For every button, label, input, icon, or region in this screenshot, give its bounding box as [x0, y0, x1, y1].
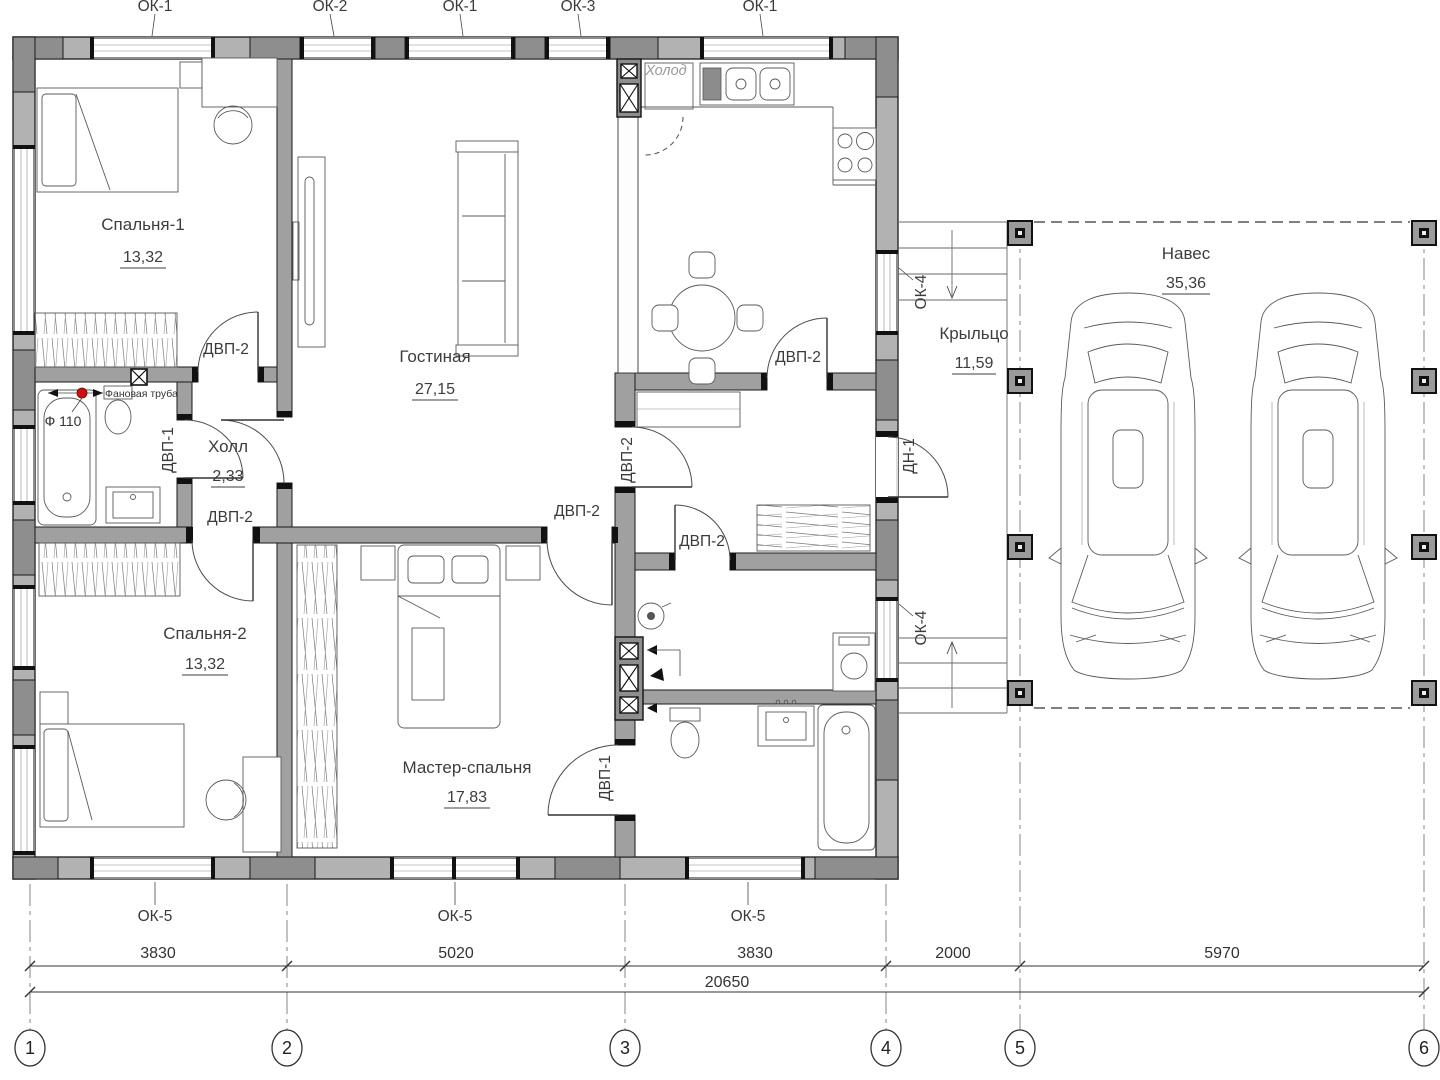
washing-machine [833, 633, 875, 691]
wardrobe [35, 313, 177, 367]
room-area-hall: 2,33 [212, 468, 243, 485]
axis-bubble-3: 3 [620, 1038, 630, 1058]
dim-segment-4: 2000 [935, 945, 971, 962]
floor-plan-page: 3830 5020 3830 2000 5970 20650 1 2 3 4 5… [0, 0, 1440, 1080]
dim-total: 20650 [705, 974, 750, 991]
door-label-dvp2-5: ДВП-2 [679, 533, 725, 550]
carport [1008, 221, 1436, 1031]
door-label-dvp2-1: ДВП-2 [203, 341, 249, 358]
bed [37, 62, 202, 192]
shelf [637, 392, 740, 427]
vent-shaft-icon [131, 369, 147, 385]
window-label-top-2: ОК-2 [313, 0, 348, 15]
stove [833, 128, 876, 180]
dim-segment-5: 5970 [1204, 945, 1240, 962]
wardrobe [39, 543, 180, 596]
floor-plan-drawing: 3830 5020 3830 2000 5970 20650 1 2 3 4 5… [0, 0, 1440, 1080]
desk-and-chair [206, 757, 281, 852]
dim-segment-3: 3830 [737, 945, 773, 962]
door-label-dvp1-1: ДВП-1 [160, 427, 177, 473]
room-area-bedroom1: 13,32 [123, 249, 163, 266]
door-label-dvp2-4: ДВП-2 [619, 437, 636, 483]
sewer-pipe-label: Фановая труба [105, 388, 178, 400]
room-label-bedroom2: Спальня-2 [163, 624, 246, 643]
dimension-system: 3830 5020 3830 2000 5970 20650 1 2 3 4 5… [15, 884, 1439, 1066]
window-label-top-3: ОК-1 [443, 0, 478, 15]
fridge-label: Холод [644, 63, 686, 79]
room-area-porch: 11,59 [955, 355, 994, 372]
room-label-master: Мастер-спальня [402, 758, 531, 777]
bed [40, 692, 184, 827]
room-area-master: 17,83 [447, 789, 487, 806]
entrance-opening [876, 437, 898, 497]
door-label-dvp1-2: ДВП-1 [597, 755, 614, 801]
dining-table [652, 252, 763, 384]
room-area-living: 27,15 [415, 381, 455, 398]
room-label-bedroom1: Спальня-1 [101, 215, 184, 234]
toilet [670, 708, 700, 758]
wardrobe [757, 505, 870, 551]
axis-bubble-1: 1 [25, 1038, 35, 1058]
window-label-top-5: ОК-1 [743, 0, 778, 15]
axis-bubble-5: 5 [1015, 1038, 1025, 1058]
window-label-bottom-2: ОК-5 [438, 908, 473, 925]
door-label-dvp2-2: ДВП-2 [775, 349, 821, 366]
room-label-porch: Крыльцо [939, 324, 1008, 343]
room-label-carport: Навес [1162, 244, 1211, 263]
axis-bubble-2: 2 [282, 1038, 292, 1058]
car-1 [1049, 293, 1207, 679]
master-furniture [297, 545, 540, 848]
tv-cabinet [293, 157, 325, 347]
room-area-carport: 35,36 [1166, 275, 1206, 292]
room-label-living: Гостиная [399, 347, 470, 366]
door-label-dvp2-6: ДВП-2 [207, 509, 253, 526]
room-area-bedroom2: 13,32 [185, 656, 225, 673]
vent-shaft-block [617, 59, 641, 117]
pipe-diameter-label: Ф 110 [45, 413, 82, 429]
kitchen-sink [700, 63, 794, 105]
floor-drain [638, 603, 671, 629]
room-label-hall: Холл [208, 437, 248, 456]
window-label-right-1: ОК-4 [913, 274, 930, 309]
axis-bubbles [15, 1030, 1439, 1066]
door-label-dn1: ДН-1 [901, 438, 918, 473]
door-label-dvp2-3: ДВП-2 [554, 503, 600, 520]
sofa [456, 141, 518, 356]
vent-shaft-block [615, 637, 680, 720]
double-bed [398, 545, 500, 728]
desk-and-chair [202, 58, 277, 144]
dim-segment-2: 5020 [438, 945, 474, 962]
nightstand [506, 546, 540, 580]
axis-bubble-4: 4 [881, 1038, 891, 1058]
bathtub [818, 705, 875, 850]
car-2 [1239, 293, 1397, 679]
axis-bubble-6: 6 [1419, 1038, 1429, 1058]
bathtub [38, 390, 96, 525]
window-label-bottom-3: ОК-5 [731, 908, 766, 925]
window-label-right-2: ОК-4 [913, 610, 930, 645]
wardrobe [297, 545, 337, 848]
dim-segment-1: 3830 [140, 945, 176, 962]
nightstand [361, 546, 395, 580]
sink [758, 700, 814, 746]
window-label-top-1: ОК-1 [138, 0, 173, 15]
window-label-top-4: ОК-3 [561, 0, 596, 15]
window-label-bottom-1: ОК-5 [138, 908, 173, 925]
sink [106, 487, 160, 523]
